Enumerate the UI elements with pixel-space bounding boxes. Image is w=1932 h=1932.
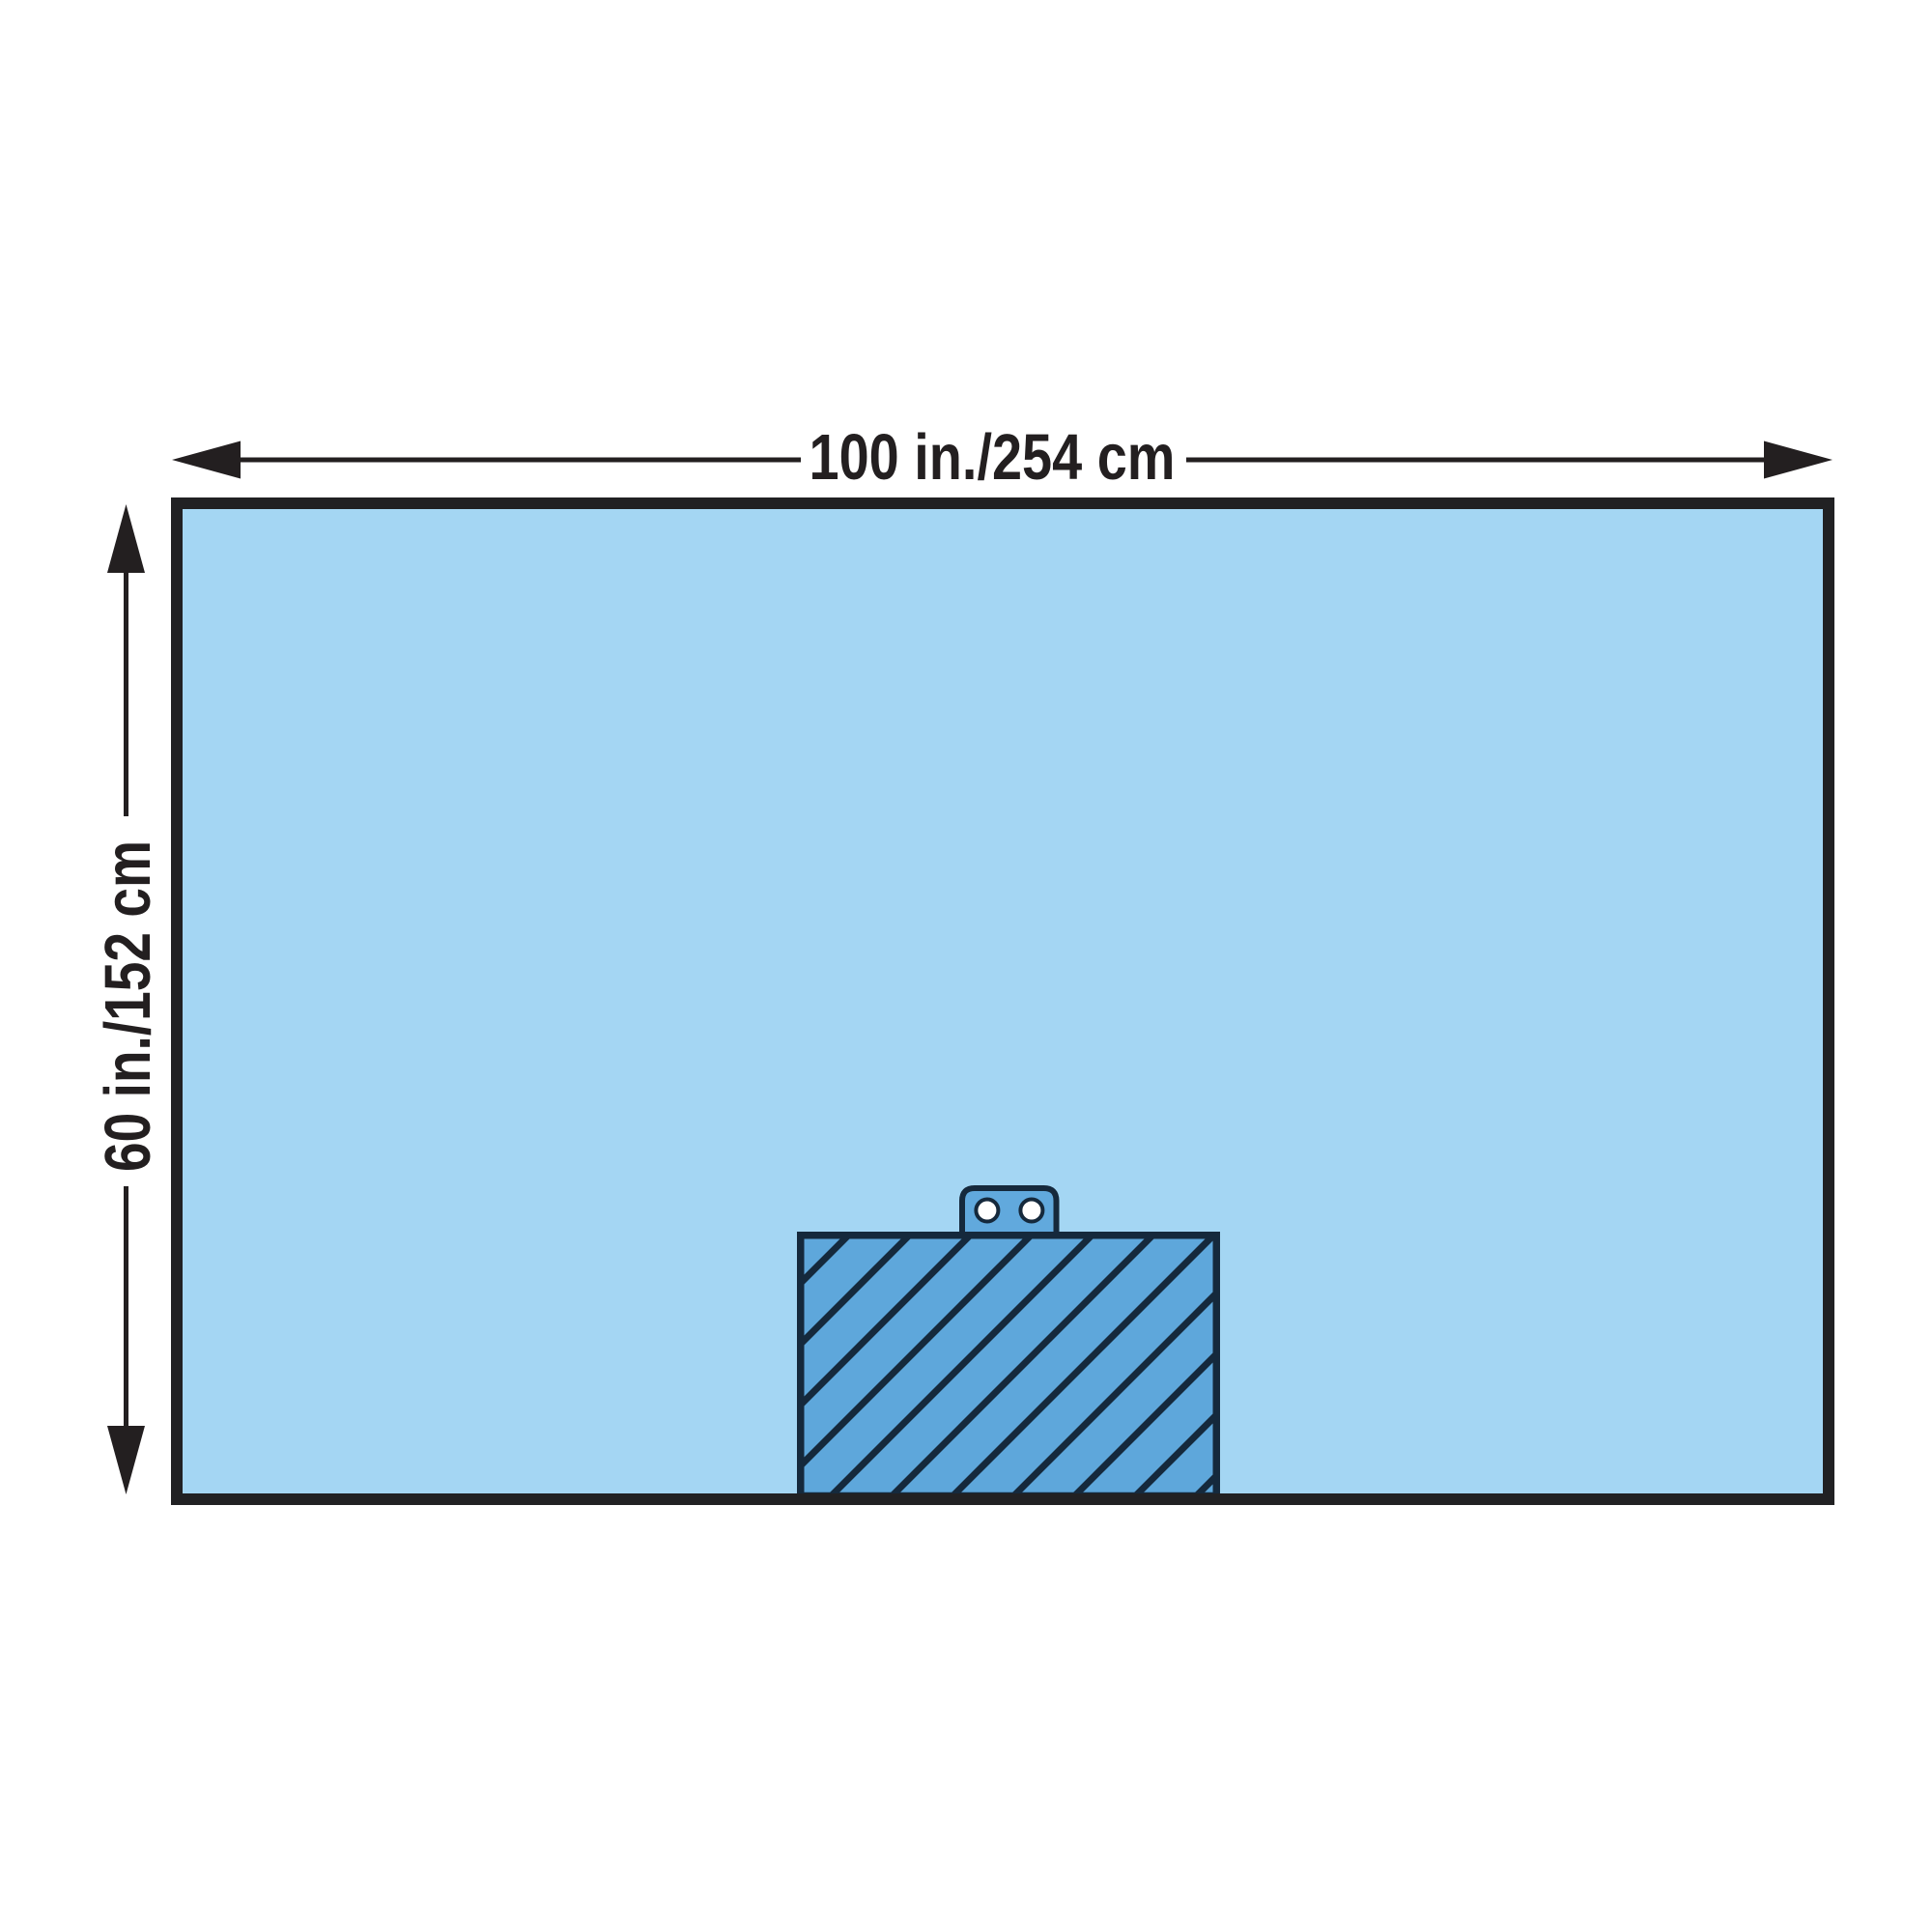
svg-text:100 in./254 cm: 100 in./254 cm	[810, 421, 1176, 494]
svg-text:60 in./152 cm: 60 in./152 cm	[92, 840, 164, 1172]
